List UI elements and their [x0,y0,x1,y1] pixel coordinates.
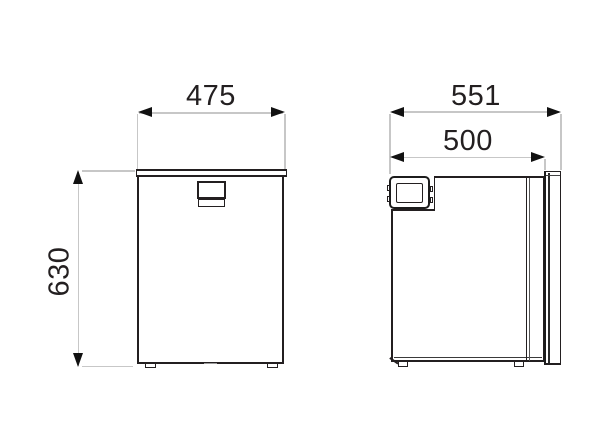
extension-line [137,114,139,169]
compressor-inner [396,183,423,203]
front-foot-left [145,364,156,369]
door-handle [197,181,227,200]
side-door-inner-line [548,173,550,363]
side-foot-left [398,362,409,367]
dimension-line [78,172,80,366]
front-top-rim [136,169,287,177]
compressor-clip [387,196,390,202]
dim-arrow-left-icon [138,107,152,117]
dim-arrow-right-icon [271,107,285,117]
dim-arrow-down-icon [73,353,83,367]
dim-arrow-right-icon [531,152,545,162]
dim-arrow-up-icon [73,170,83,184]
extension-line [82,170,135,172]
front-width-label: 475 [171,82,251,111]
notch-horizontal-edge [391,209,435,211]
compressor-clip [430,186,433,192]
extension-line [82,366,133,368]
side-left-edge [391,209,393,362]
compressor-clip [430,197,433,203]
notch-vertical-edge [434,176,436,211]
side-door-top-line [546,175,560,176]
dimension-line [139,112,283,114]
side-front-frame-line2 [529,178,530,361]
dim-arrow-right-icon [547,107,561,117]
side-foot-right [514,362,525,367]
extension-line [560,114,562,170]
extension-line [389,114,391,174]
dim-arrow-left-icon [390,152,404,162]
side-base-line [394,357,542,358]
dim-arrow-left-icon [390,107,404,117]
technical-drawing: 475 630 [0,0,600,445]
extension-line [284,114,286,169]
side-body-depth-label: 500 [428,127,508,156]
door-handle-lip [198,199,225,207]
compressor-clip [387,185,390,191]
front-foot-right [267,364,278,369]
side-front-frame-line [526,178,528,361]
front-height-label: 630 [46,231,75,311]
side-door [544,171,561,365]
front-bottom-gap-mark [204,363,217,364]
side-total-depth-label: 551 [436,82,516,111]
